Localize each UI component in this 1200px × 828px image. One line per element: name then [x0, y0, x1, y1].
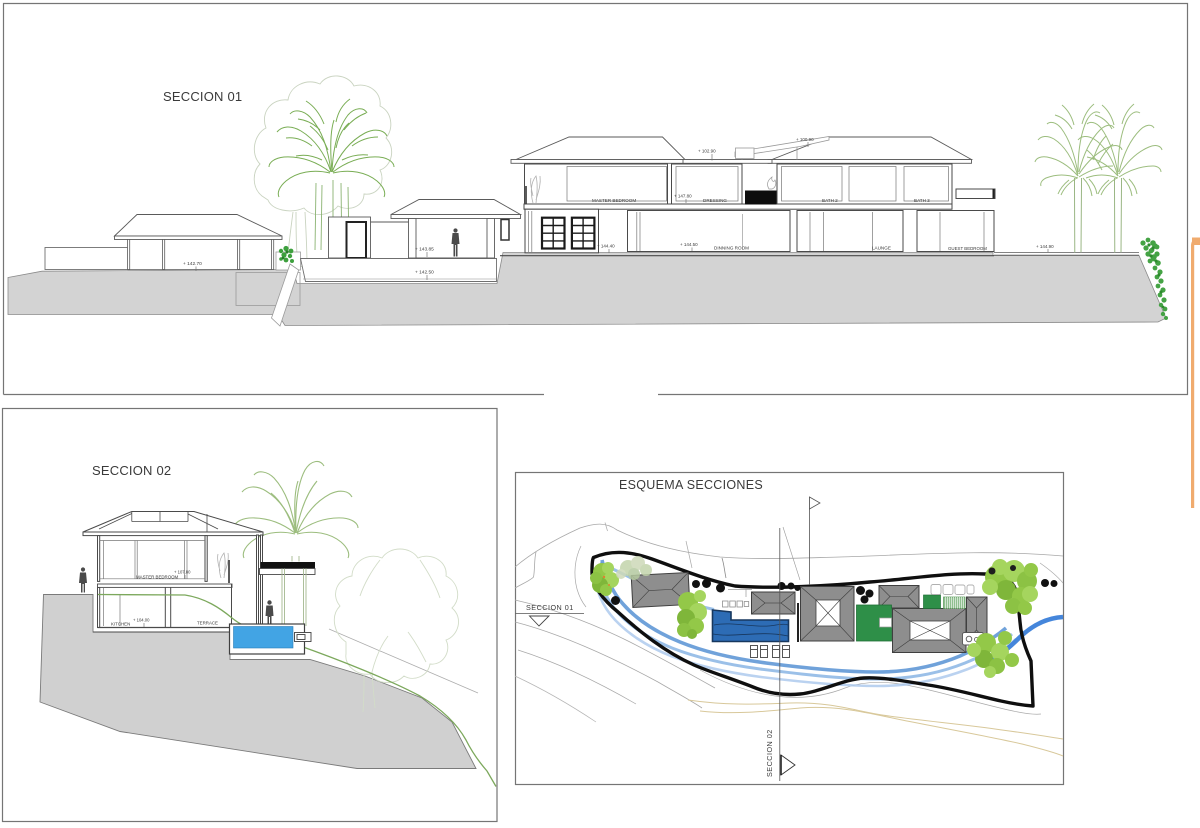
svg-text:SECCION 02: SECCION 02 — [92, 463, 171, 478]
svg-text:+ 142.50: + 142.50 — [415, 270, 434, 276]
svg-text:TERRACE: TERRACE — [197, 621, 218, 626]
svg-text:+ 102.90: + 102.90 — [698, 149, 716, 154]
svg-text:DRESSING: DRESSING — [703, 198, 727, 203]
svg-text:SECCION 02: SECCION 02 — [765, 729, 774, 777]
svg-text:MASTER BEDROOM: MASTER BEDROOM — [136, 575, 179, 580]
svg-text:LAUNGE: LAUNGE — [872, 246, 891, 251]
svg-text:+ 142.70: + 142.70 — [183, 261, 202, 267]
svg-text:+ 107.80: + 107.80 — [174, 570, 191, 575]
svg-text:SECCION 01: SECCION 01 — [526, 603, 574, 612]
svg-text:+ 100.90: + 100.90 — [796, 137, 814, 142]
svg-text:BATH 2: BATH 2 — [822, 198, 838, 203]
svg-text:ESQUEMA SECCIONES: ESQUEMA SECCIONES — [619, 478, 763, 492]
svg-text:+ 144.90: + 144.90 — [1036, 244, 1054, 249]
svg-text:+ 104.00: + 104.00 — [133, 618, 150, 623]
svg-text:+ 144.40: + 144.40 — [597, 244, 615, 249]
svg-text:GUEST BEDROOM: GUEST BEDROOM — [948, 246, 987, 251]
svg-text:BATH 3: BATH 3 — [914, 198, 930, 203]
svg-text:SECCION 01: SECCION 01 — [163, 89, 242, 104]
svg-text:MASTER BEDROOM: MASTER BEDROOM — [592, 198, 636, 203]
svg-text:KITCHEN: KITCHEN — [111, 622, 130, 627]
svg-text:+ 147.80: + 147.80 — [674, 194, 692, 199]
svg-text:DINNING ROOM: DINNING ROOM — [714, 246, 749, 251]
svg-text:+ 144.50: + 144.50 — [680, 242, 698, 247]
svg-text:+ 143.85: + 143.85 — [415, 247, 434, 253]
